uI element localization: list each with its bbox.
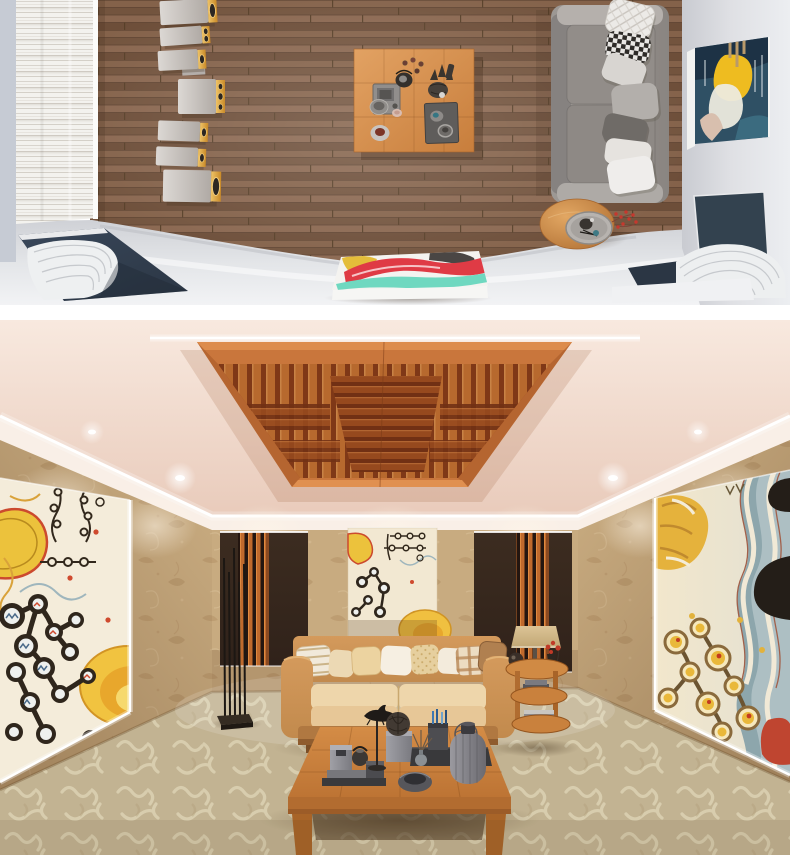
panel-divider bbox=[0, 305, 790, 320]
table-tier bbox=[512, 715, 570, 733]
pillows bbox=[296, 641, 507, 678]
kettle-ornament bbox=[352, 747, 368, 766]
top-view-canvas bbox=[0, 0, 790, 305]
twig-ball-vase bbox=[386, 712, 412, 762]
render-collage bbox=[0, 0, 790, 855]
sofa-top bbox=[536, 0, 669, 203]
tapestry bbox=[348, 528, 451, 650]
pillow bbox=[328, 649, 355, 678]
sofa-arm bbox=[281, 656, 313, 738]
pillow bbox=[606, 154, 659, 198]
floor-vignette bbox=[0, 820, 790, 855]
left-wall-strip bbox=[0, 0, 16, 262]
top-view-render bbox=[0, 0, 790, 305]
speaker bbox=[159, 25, 210, 49]
perspective-view-canvas bbox=[0, 320, 790, 855]
floor-canvas-painting bbox=[324, 251, 492, 305]
leaning-abstract-painting bbox=[687, 37, 769, 150]
table-tier bbox=[511, 687, 567, 705]
pillow bbox=[410, 644, 440, 675]
pillow bbox=[351, 646, 381, 675]
fluted-panel bbox=[16, 0, 98, 224]
kettle bbox=[396, 71, 413, 88]
speaker-center bbox=[178, 79, 225, 118]
speaker bbox=[158, 49, 207, 74]
speaker bbox=[159, 0, 217, 29]
speaker bbox=[158, 120, 209, 145]
speaker bbox=[163, 170, 222, 207]
coffee-table-top bbox=[354, 49, 483, 160]
pillow bbox=[380, 645, 412, 676]
serving-tray bbox=[424, 102, 458, 143]
speaker bbox=[156, 146, 207, 170]
round-bowl bbox=[398, 772, 432, 792]
perspective-view-render bbox=[0, 320, 790, 855]
